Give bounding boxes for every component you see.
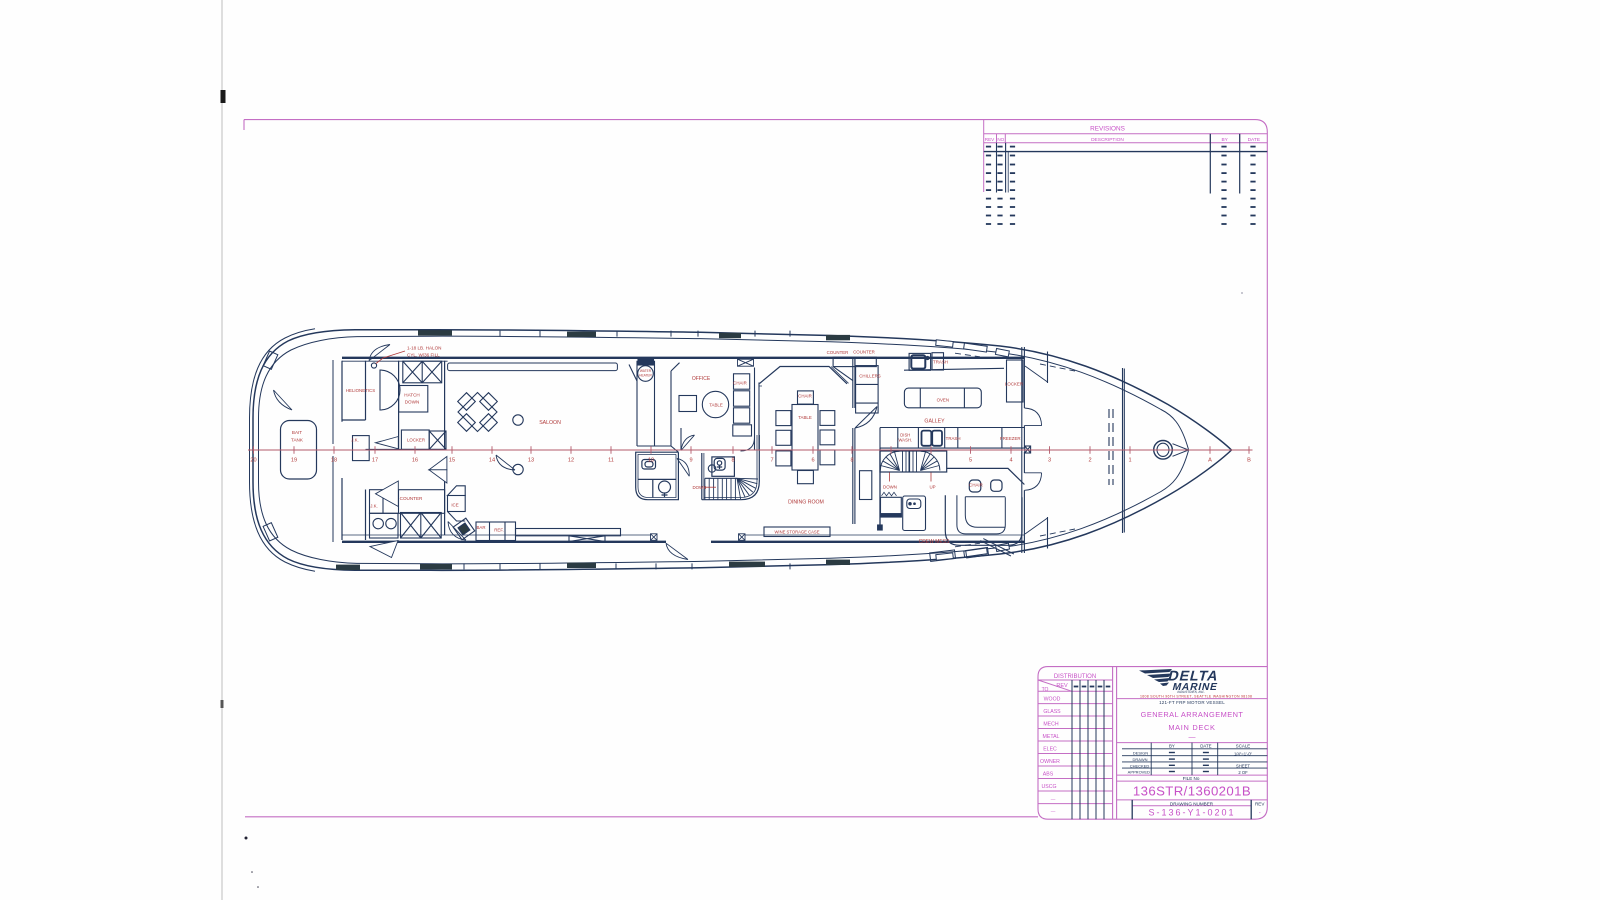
svg-text:DRAWING NUMBER: DRAWING NUMBER [1170, 801, 1214, 806]
svg-text:ELEC: ELEC [1043, 747, 1057, 753]
svg-text:BY: BY [1169, 744, 1175, 749]
svg-text:12: 12 [568, 458, 574, 464]
svg-text:1-18 LB. HALON: 1-18 LB. HALON [407, 346, 441, 351]
svg-text:CHILLERS: CHILLERS [859, 374, 881, 379]
svg-text:OVEN: OVEN [937, 398, 949, 403]
svg-text:15: 15 [449, 458, 455, 464]
svg-text:GENERAL ARRANGEMENT: GENERAL ARRANGEMENT [1141, 710, 1244, 719]
svg-text:WATER: WATER [640, 369, 652, 373]
svg-text:LOCKER: LOCKER [1005, 382, 1023, 387]
svg-text:121-FT FRP MOTOR VESSEL: 121-FT FRP MOTOR VESSEL [1159, 700, 1225, 705]
svg-text:FREEZER: FREEZER [1000, 436, 1021, 441]
svg-text:SALOON: SALOON [539, 420, 561, 426]
svg-text:BY: BY [1221, 137, 1228, 143]
svg-text:3: 3 [1048, 458, 1051, 464]
svg-text:OWNER: OWNER [1040, 759, 1060, 765]
svg-text:BAIT: BAIT [292, 430, 302, 435]
svg-text:S-136-Y1-0201: S-136-Y1-0201 [1148, 807, 1235, 817]
svg-text:LOCKER: LOCKER [407, 438, 425, 443]
svg-text:4: 4 [1009, 458, 1012, 464]
svg-text:6: 6 [811, 458, 814, 464]
svg-text:-: - [1259, 811, 1261, 817]
svg-text:OFFICE: OFFICE [692, 376, 711, 382]
svg-text:FILE No: FILE No [1183, 776, 1200, 781]
svg-text:10: 10 [648, 458, 654, 464]
svg-text:COUNTER: COUNTER [827, 350, 849, 355]
svg-text:13: 13 [528, 458, 534, 464]
svg-text:TRASH: TRASH [946, 436, 961, 441]
svg-text:8: 8 [850, 458, 853, 464]
svg-text:WASH.: WASH. [899, 438, 913, 443]
svg-text:SHEET: SHEET [1236, 763, 1250, 768]
svg-text:TABLE: TABLE [709, 403, 723, 408]
svg-text:COUNTER: COUNTER [853, 350, 875, 355]
svg-text:18: 18 [331, 458, 337, 464]
svg-text:ABS: ABS [1043, 772, 1054, 778]
svg-text:WOOD: WOOD [1044, 697, 1061, 703]
svg-text:CHAIR: CHAIR [733, 381, 747, 386]
svg-text:8: 8 [731, 458, 734, 464]
svg-text:DOWN: DOWN [405, 400, 420, 405]
svg-text:TRASH: TRASH [933, 360, 948, 365]
svg-text:J.K.: J.K. [351, 438, 359, 443]
svg-text:REV: REV [1056, 683, 1068, 689]
svg-text:B: B [1247, 458, 1251, 464]
svg-text:DESIGN: DESIGN [1133, 751, 1148, 756]
svg-text:WINE STORAGE CASE: WINE STORAGE CASE [774, 530, 819, 535]
svg-text:REVISIONS: REVISIONS [1090, 126, 1125, 133]
svg-text:16: 16 [412, 458, 418, 464]
svg-text:MECH: MECH [1043, 722, 1059, 728]
svg-text:METAL: METAL [1043, 734, 1060, 740]
svg-text:—: — [1051, 809, 1056, 814]
svg-text:APPROVED: APPROVED [1128, 770, 1150, 775]
svg-text:20: 20 [250, 458, 256, 464]
svg-text:HEATER: HEATER [639, 374, 652, 378]
svg-text:CYL. W/36 FILL: CYL. W/36 FILL [407, 353, 440, 358]
svg-text:DRAWN: DRAWN [1133, 757, 1148, 762]
svg-text:5: 5 [969, 458, 972, 464]
svg-text:HATCH: HATCH [404, 393, 419, 398]
svg-text:14: 14 [489, 458, 495, 464]
svg-text:TO: TO [1042, 687, 1049, 693]
svg-text:MAIN DECK: MAIN DECK [1168, 723, 1215, 732]
svg-text:1/4"=1'-0": 1/4"=1'-0" [1234, 751, 1253, 756]
svg-text:DISTRIBUTION: DISTRIBUTION [1054, 674, 1096, 680]
svg-text:136STR/1360201B: 136STR/1360201B [1133, 783, 1251, 798]
svg-text:—: — [1189, 735, 1196, 742]
svg-text:—: — [1051, 797, 1056, 802]
svg-text:9: 9 [689, 458, 692, 464]
svg-text:REV: REV [1255, 801, 1265, 806]
svg-text:DATE: DATE [1248, 137, 1260, 143]
svg-text:DATE: DATE [1200, 744, 1211, 749]
svg-text:DOWN: DOWN [883, 485, 897, 490]
svg-text:CHAIR: CHAIR [798, 394, 812, 399]
svg-text:DINING ROOM: DINING ROOM [788, 500, 824, 506]
svg-text:REV: REV [985, 137, 995, 142]
svg-text:BAR: BAR [476, 525, 485, 530]
svg-text:1608 SOUTH 96TH STREET, SEATTL: 1608 SOUTH 96TH STREET, SEATTLE WASHINGT… [1140, 694, 1252, 698]
svg-text:19: 19 [291, 458, 297, 464]
svg-text:UP: UP [929, 485, 935, 490]
svg-text:COUNTER: COUNTER [400, 496, 423, 501]
svg-text:REF.: REF. [494, 528, 504, 533]
svg-text:TABLE: TABLE [798, 415, 812, 420]
svg-text:7: 7 [770, 458, 773, 464]
svg-text:TANK: TANK [291, 438, 304, 443]
svg-text:A: A [1208, 458, 1212, 464]
svg-text:DOWN: DOWN [692, 485, 706, 490]
svg-text:ICE: ICE [451, 503, 458, 508]
svg-text:GALLEY: GALLEY [924, 419, 945, 425]
svg-text:17: 17 [372, 458, 378, 464]
svg-text:CHAIR: CHAIR [969, 483, 983, 488]
svg-text:J.K.: J.K. [370, 504, 378, 509]
svg-text:2 OF: 2 OF [1238, 770, 1248, 775]
svg-text:GLASS: GLASS [1043, 709, 1061, 715]
svg-text:CREW MESS: CREW MESS [919, 539, 951, 545]
svg-text:USCG: USCG [1042, 784, 1057, 790]
svg-text:HELIONETICS: HELIONETICS [346, 388, 375, 393]
svg-text:11: 11 [608, 458, 614, 464]
svg-text:SCALE: SCALE [1236, 744, 1250, 749]
svg-text:CHECKED: CHECKED [1130, 763, 1150, 768]
svg-text:1: 1 [1128, 458, 1131, 464]
svg-text:2: 2 [1088, 458, 1091, 464]
svg-text:DESCRIPTION: DESCRIPTION [1091, 137, 1124, 143]
svg-text:NO: NO [997, 137, 1004, 142]
